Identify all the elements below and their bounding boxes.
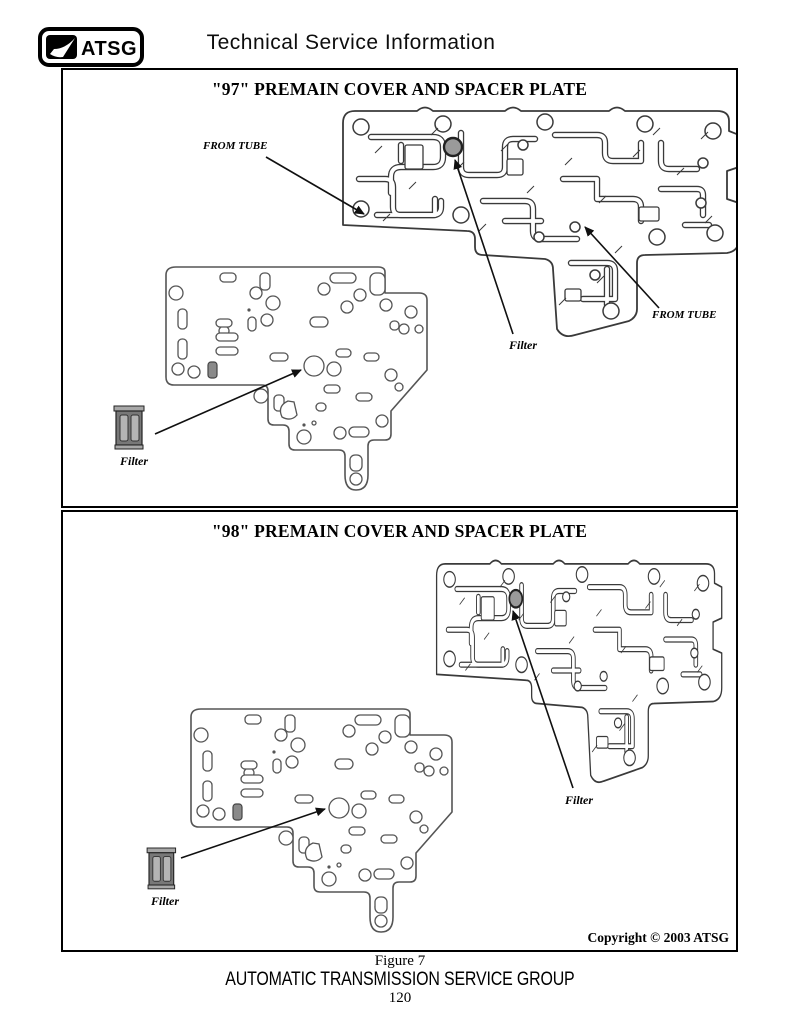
atsg-logo: ATSG bbox=[38, 27, 144, 67]
premain-cover-98 bbox=[437, 560, 722, 782]
diagram-98 bbox=[63, 512, 736, 950]
label-filter-icon: Filter bbox=[151, 894, 179, 909]
filter-icon bbox=[114, 406, 144, 449]
document-page: ATSG Technical Service Information bbox=[0, 0, 800, 1035]
filter-icon bbox=[147, 848, 176, 889]
spacer-plate-98 bbox=[191, 709, 452, 932]
label-from-tube-left: FROM TUBE bbox=[203, 140, 268, 152]
label-filter-cover: Filter bbox=[509, 338, 537, 353]
spacer-plate-97 bbox=[166, 267, 427, 490]
label-filter-cover: Filter bbox=[565, 793, 593, 808]
panel-98-title: "98" PREMAIN COVER AND SPACER PLATE bbox=[63, 521, 736, 542]
panel-97-title: "97" PREMAIN COVER AND SPACER PLATE bbox=[63, 79, 736, 100]
label-from-tube-right: FROM TUBE bbox=[652, 309, 717, 321]
figure-caption: Figure 7 bbox=[0, 953, 800, 970]
page-title: Technical Service Information bbox=[206, 31, 496, 55]
diagram-97 bbox=[63, 70, 736, 506]
copyright-notice: Copyright © 2003 ATSG bbox=[588, 930, 729, 946]
page-number: 120 bbox=[0, 990, 800, 1007]
label-filter-icon: Filter bbox=[120, 454, 148, 469]
panel-98: "98" PREMAIN COVER AND SPACER PLATE Filt… bbox=[61, 510, 738, 952]
panel-97: "97" PREMAIN COVER AND SPACER PLATE FROM… bbox=[61, 68, 738, 508]
organization-name: AUTOMATIC TRANSMISSION SERVICE GROUP bbox=[0, 969, 800, 991]
logo-text: ATSG bbox=[81, 38, 137, 60]
